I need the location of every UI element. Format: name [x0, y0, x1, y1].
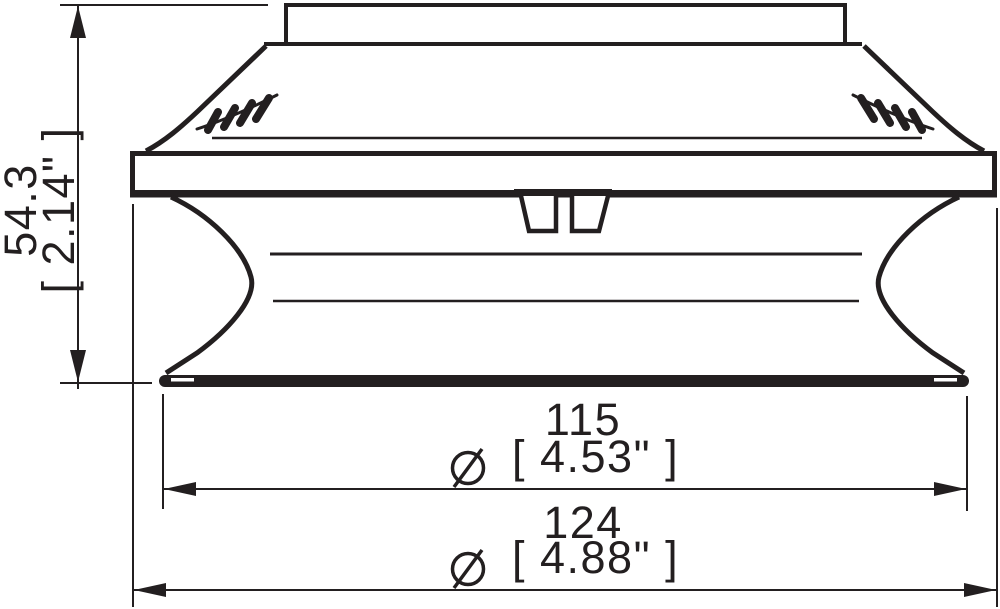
- flange-outline: [130, 154, 997, 195]
- inner-diameter-label: [ 4.53" ]: [448, 433, 679, 489]
- top-fitting-outline: [146, 5, 984, 151]
- diameter-symbol-icon: [448, 542, 488, 590]
- bellows-outline: [166, 197, 964, 373]
- arrow-left-icon: [164, 482, 196, 496]
- diameter-symbol-icon: [448, 441, 488, 489]
- sealing-lip-outline: [165, 378, 963, 382]
- height-inch-value: [ 2.14" ]: [40, 90, 78, 330]
- technical-drawing-suction-cup: 54.3 [ 2.14" ] 115 [ 4.53" ] 124 [ 4.88"…: [0, 0, 1000, 609]
- arrow-up-icon: [70, 6, 86, 38]
- outer-diameter-inch-value: [ 4.88" ]: [512, 534, 679, 582]
- arrow-down-icon: [70, 350, 86, 382]
- arrow-left-icon: [134, 583, 166, 597]
- height-dimension-label: 54.3 [ 2.14" ]: [2, 90, 78, 330]
- inner-diameter-inch-value: [ 4.53" ]: [512, 433, 679, 481]
- arrow-right-icon: [934, 482, 966, 496]
- center-tabs-outline: [514, 193, 612, 231]
- arrow-right-icon: [964, 583, 996, 597]
- outer-diameter-label: [ 4.88" ]: [448, 534, 679, 590]
